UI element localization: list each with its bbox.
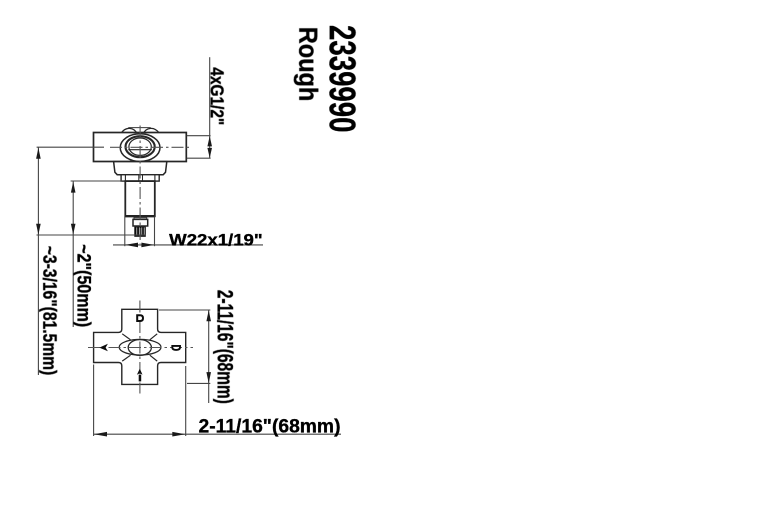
svg-text:~3-3/16"(81.5mm): ~3-3/16"(81.5mm) [38, 246, 59, 375]
svg-text:4xG1/2": 4xG1/2" [207, 67, 228, 125]
svg-text:~2"(50mm): ~2"(50mm) [73, 244, 94, 327]
svg-text:2339990: 2339990 [322, 25, 364, 133]
svg-text:Rough: Rough [293, 27, 321, 102]
svg-text:2-11/16"(68mm): 2-11/16"(68mm) [213, 290, 238, 404]
svg-text:W22x1/19": W22x1/19" [169, 231, 263, 249]
svg-text:2-11/16"(68mm): 2-11/16"(68mm) [199, 417, 341, 438]
